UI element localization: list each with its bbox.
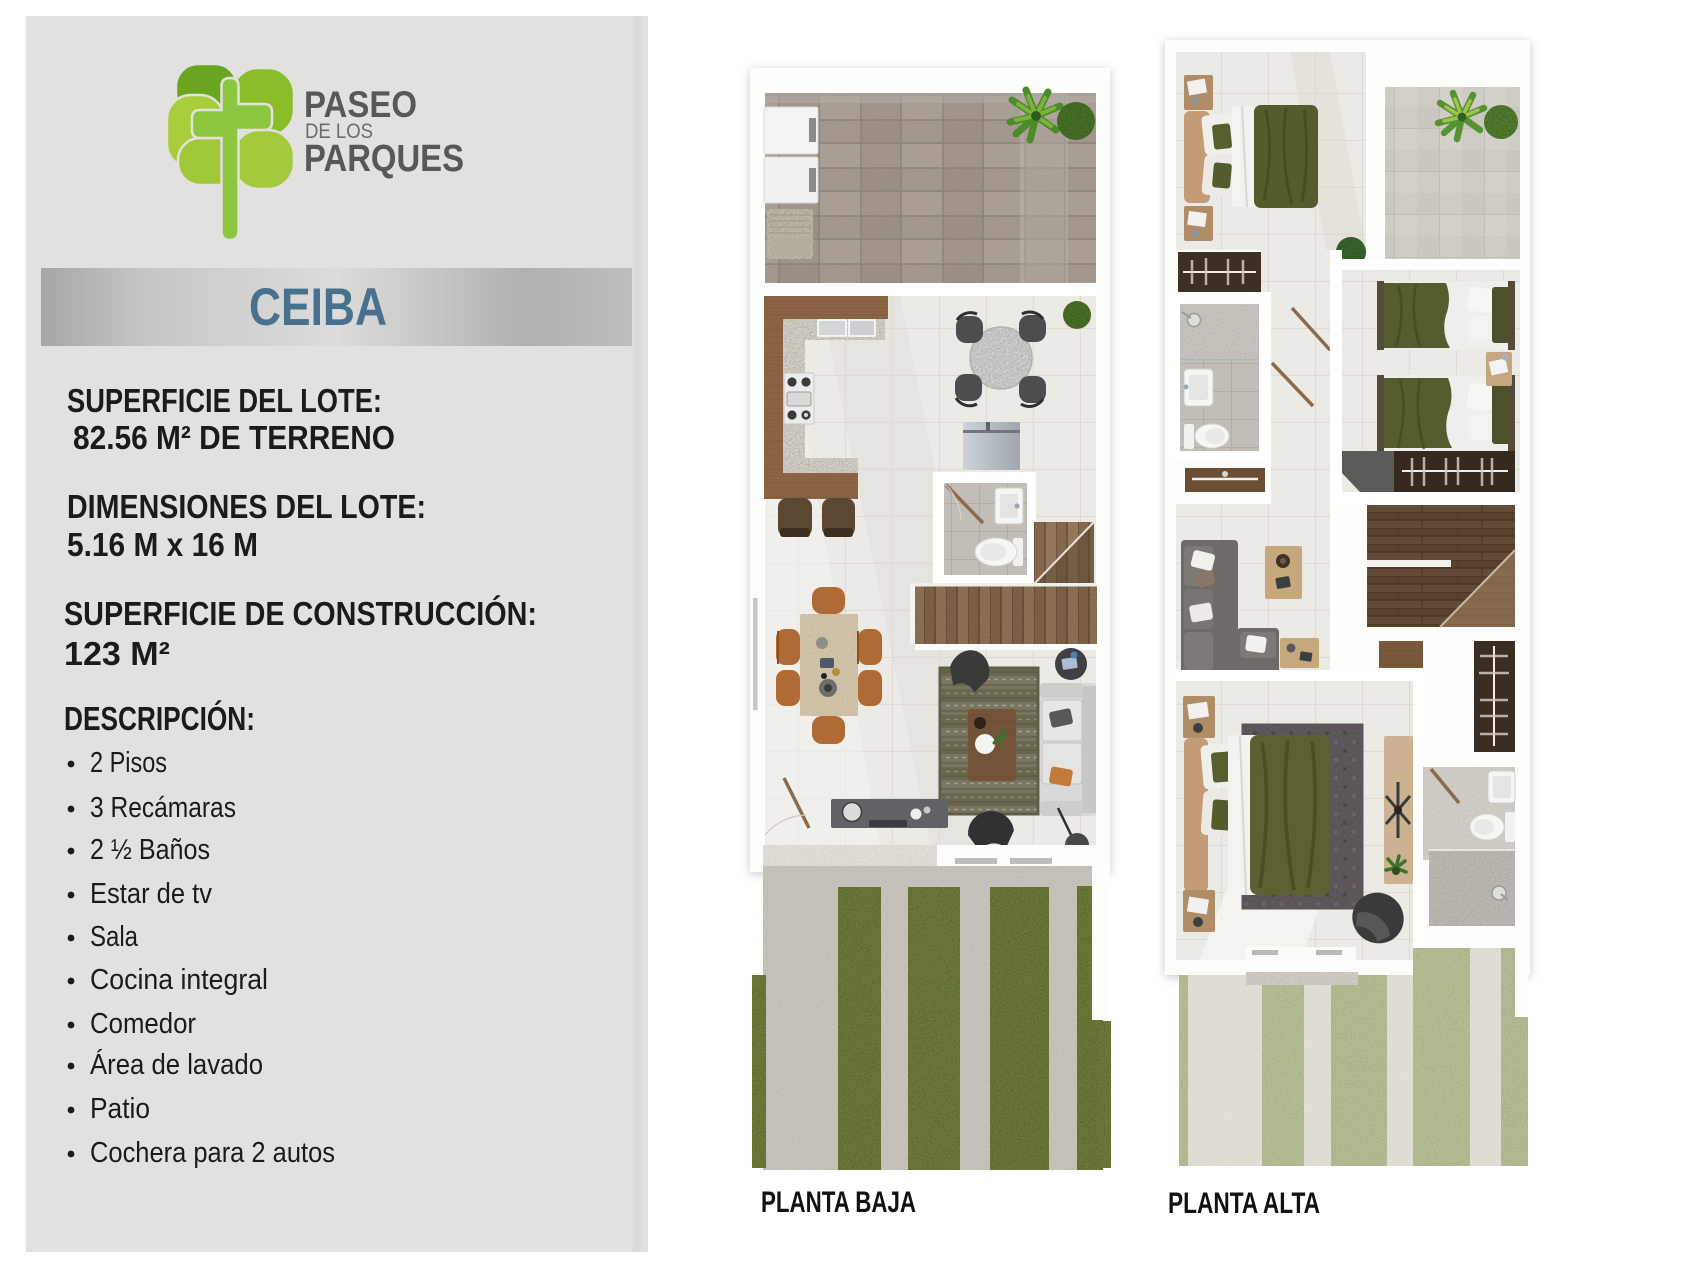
svg-text:SUPERFICIE DEL LOTE:: SUPERFICIE DEL LOTE: — [67, 382, 382, 419]
svg-text:PLANTA BAJA: PLANTA BAJA — [761, 1186, 916, 1219]
svg-text:Comedor: Comedor — [90, 1008, 196, 1040]
svg-text:2 Pisos: 2 Pisos — [90, 747, 167, 779]
svg-text:Patio: Patio — [90, 1093, 150, 1125]
svg-text:PARQUES: PARQUES — [304, 138, 464, 180]
svg-text:2 ½ Baños: 2 ½ Baños — [90, 834, 210, 866]
svg-text:SUPERFICIE DE CONSTRUCCIÓN:: SUPERFICIE DE CONSTRUCCIÓN: — [64, 595, 537, 632]
svg-text:DESCRIPCIÓN:: DESCRIPCIÓN: — [64, 700, 255, 737]
svg-text:3 Recámaras: 3 Recámaras — [90, 792, 236, 824]
svg-text:82.56 M² DE TERRENO: 82.56 M² DE TERRENO — [73, 419, 395, 456]
svg-text:PLANTA ALTA: PLANTA ALTA — [1168, 1187, 1320, 1220]
svg-text:PASEO: PASEO — [304, 84, 417, 125]
svg-text:DIMENSIONES DEL LOTE:: DIMENSIONES DEL LOTE: — [67, 488, 426, 525]
svg-text:Cocina integral: Cocina integral — [90, 964, 268, 996]
svg-text:Cochera para 2 autos: Cochera para 2 autos — [90, 1137, 335, 1169]
svg-text:Estar de tv: Estar de tv — [90, 878, 212, 910]
svg-text:123 M²: 123 M² — [64, 635, 170, 672]
svg-text:CEIBA: CEIBA — [249, 278, 387, 337]
svg-text:Área de lavado: Área de lavado — [90, 1048, 263, 1081]
svg-text:5.16 M x 16 M: 5.16 M x 16 M — [67, 526, 258, 563]
svg-text:Sala: Sala — [90, 921, 139, 953]
